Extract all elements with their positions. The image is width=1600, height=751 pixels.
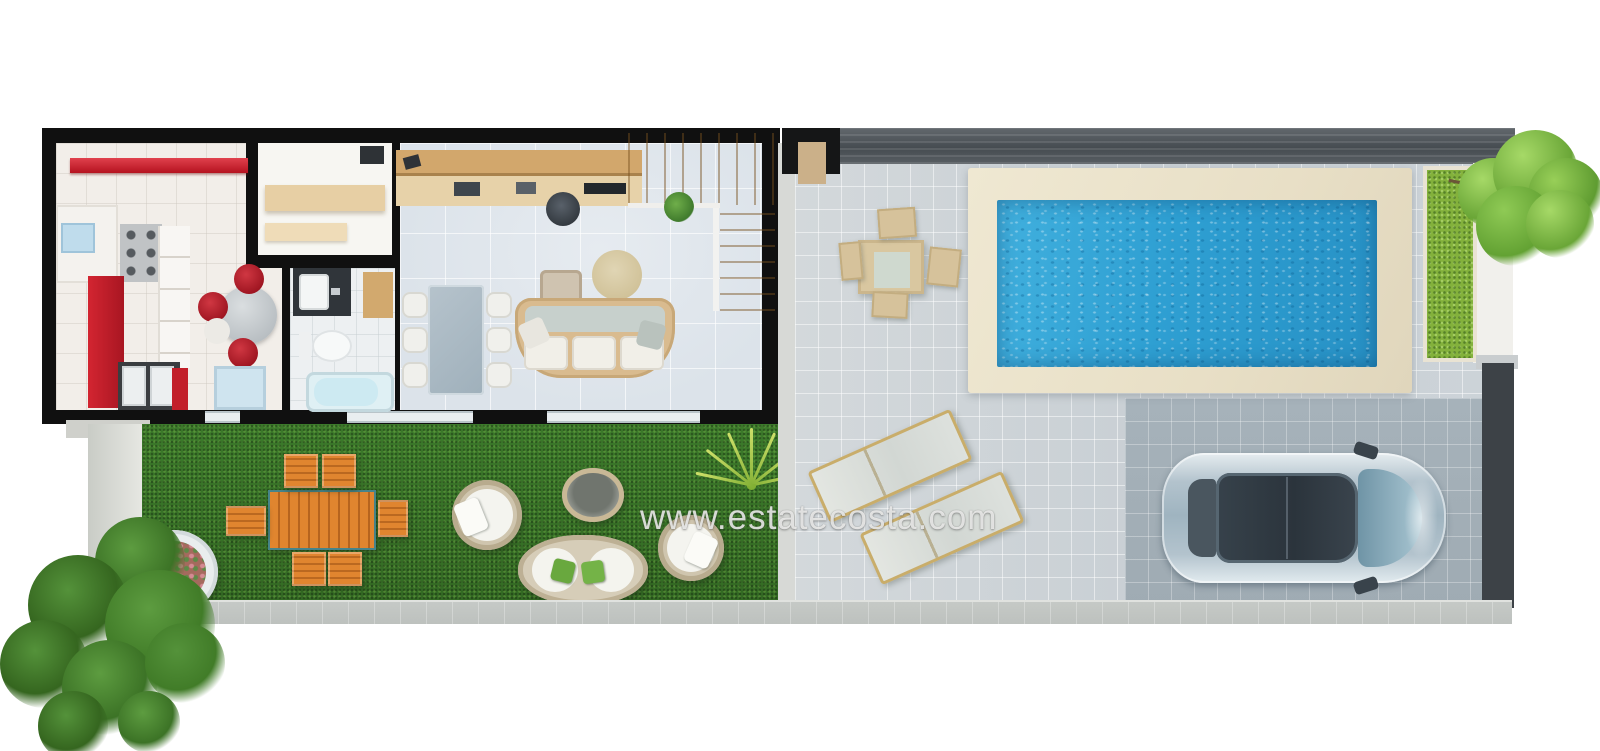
kitchen-cabinets — [158, 226, 190, 368]
boundary-fence — [782, 128, 1515, 164]
office-chair — [546, 192, 580, 226]
orange-garden-table — [268, 490, 376, 550]
desk — [396, 150, 642, 206]
toilet-tank — [299, 332, 311, 360]
dining-chair — [402, 327, 428, 353]
outdoor-chair — [871, 291, 908, 319]
outdoor-chair — [926, 246, 962, 287]
tree-bottom-left — [0, 505, 250, 751]
round-rug — [592, 250, 642, 300]
swimming-pool-water — [997, 200, 1377, 367]
sliding-door-glass — [547, 411, 700, 423]
bathtub-basin — [314, 378, 378, 406]
garden-chair — [292, 552, 326, 586]
car-hood-highlight — [1404, 477, 1438, 559]
dining-chair — [402, 362, 428, 388]
window-glass — [347, 411, 473, 423]
garden-chair — [322, 454, 356, 488]
staircase-lower-flight — [720, 205, 775, 311]
glass-dining-table — [428, 285, 484, 395]
tree-foliage-blob — [118, 691, 180, 751]
washing-machine — [122, 366, 146, 406]
tree-foliage-blob — [1526, 190, 1594, 258]
dining-chair — [486, 362, 512, 388]
outdoor-chair — [877, 207, 917, 240]
stair-railing — [713, 205, 719, 311]
car-rear-window — [1188, 479, 1216, 557]
right-gate-wall — [1482, 363, 1514, 608]
bathroom-shelf — [363, 272, 393, 318]
bathroom-sink — [299, 274, 329, 310]
kitchen-sink — [61, 223, 95, 253]
floor-plan-canvas: www.estatecosta.com — [0, 0, 1600, 751]
tv — [584, 183, 626, 194]
window-glass — [205, 411, 240, 423]
tree-foliage-blob — [145, 623, 225, 703]
dining-chair — [486, 292, 512, 318]
dining-chair — [402, 292, 428, 318]
garden-chair — [284, 454, 318, 488]
laptop — [454, 182, 480, 196]
kitchen-red-shelf — [70, 158, 248, 173]
car-roof-bar — [1286, 477, 1288, 559]
kitchen-chair — [234, 264, 264, 294]
staircase-upper-flight — [628, 133, 775, 205]
wall-unit — [360, 146, 384, 164]
kitchen-chair — [228, 338, 258, 368]
kitchen-red-cabinet — [172, 368, 188, 410]
outdoor-chair — [838, 241, 863, 281]
green-pillow — [581, 560, 606, 585]
washing-machine — [150, 366, 174, 406]
garden-chair — [378, 500, 408, 537]
dishwasher — [214, 366, 266, 410]
watermark: www.estatecosta.com — [640, 498, 1000, 538]
rattan-coffee-table — [562, 468, 624, 522]
dining-chair — [486, 327, 512, 353]
front-walkway — [88, 600, 1512, 624]
outdoor-table-glass — [874, 252, 910, 288]
tree-top-right — [1448, 128, 1598, 278]
sofa-seat-cushion — [572, 336, 616, 370]
closet-shelf — [265, 185, 385, 211]
desk-item — [516, 182, 536, 194]
garden-chair — [328, 552, 362, 586]
toilet — [312, 330, 352, 362]
bathroom-tap — [331, 288, 340, 295]
stove — [120, 224, 162, 282]
closet-shelf — [265, 223, 347, 241]
kitchen-chair — [204, 318, 230, 344]
car — [1158, 447, 1450, 589]
fence-post — [798, 142, 826, 184]
desk-shelf — [396, 150, 642, 176]
indoor-plant — [664, 192, 694, 222]
